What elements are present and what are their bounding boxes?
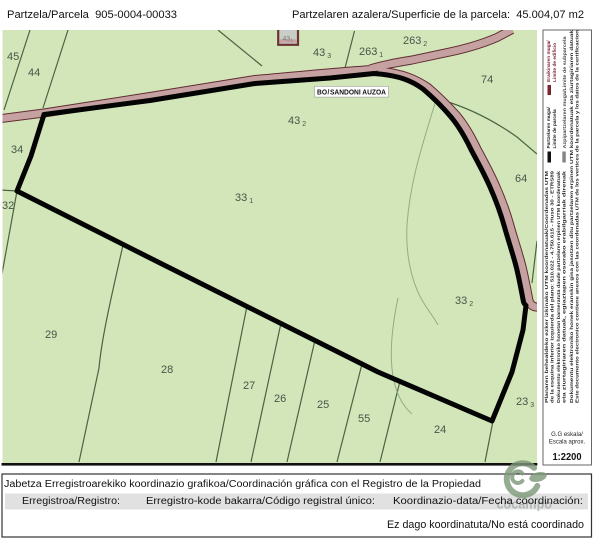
svg-text:1:2200: 1:2200 (553, 451, 582, 463)
svg-text:G.G eskala/: G.G eskala/ (551, 432, 583, 438)
svg-text:Escala aprox.: Escala aprox. (549, 440, 586, 446)
svg-text:Este documento electronico con: Este documento electronico contiene anex… (575, 29, 580, 403)
svg-text:Partzelaren azalera/Superficie: Partzelaren azalera/Superficie de la par… (292, 9, 584, 21)
svg-text:34: 34 (11, 144, 23, 156)
svg-text:Partzelaren muga/: Partzelaren muga/ (546, 107, 552, 149)
svg-text:de la esquina inferior izquier: de la esquina inferior izquierda del pla… (550, 170, 555, 403)
svg-text:24: 24 (434, 424, 446, 436)
svg-text:Eraikinaren muga/: Eraikinaren muga/ (546, 40, 552, 82)
svg-text:26: 26 (274, 393, 286, 405)
svg-text:25: 25 (317, 399, 329, 411)
svg-text:431: 431 (283, 36, 294, 43)
svg-text:27: 27 (243, 380, 255, 392)
svg-text:Ez dago koordinatuta/No está c: Ez dago koordinatuta/No está coordinado (387, 519, 584, 531)
svg-text:28: 28 (161, 364, 173, 376)
svg-text:29: 29 (45, 329, 57, 341)
svg-text:Jabetza Erregistroarekiko koor: Jabetza Erregistroarekiko koordinazio gr… (4, 479, 481, 490)
svg-text:eta ziurtagiriaren datuak, egi: eta ziurtagiriaren datuak, egiaztapen os… (562, 170, 567, 403)
svg-text:Erregistro-kode bakarra/Código: Erregistro-kode bakarra/Código registral… (146, 496, 375, 507)
svg-text:Koordinazio-data/Fecha coordin: Koordinazio-data/Fecha coordinación: (393, 496, 583, 507)
svg-text:Azpipartzelaren muga/Limite de: Azpipartzelaren muga/Limite de subparcel… (562, 36, 568, 148)
svg-text:Dokumentu elektroniko honek er: Dokumentu elektroniko honek eranskin gis… (569, 29, 574, 403)
svg-text:Planaren behealdeko ezker izki: Planaren behealdeko ezker izkinako UTM k… (544, 170, 549, 403)
svg-text:Partzela/Parcela 905-0004-000: Partzela/Parcela 905-0004-00033 (7, 9, 177, 21)
svg-text:74: 74 (481, 74, 493, 86)
svg-text:Erregistroa/Registro:: Erregistroa/Registro: (22, 496, 120, 507)
svg-text:55: 55 (358, 413, 370, 425)
svg-text:Dokumentu elektroniko honetan: Dokumentu elektroniko honetan barneratut… (556, 170, 561, 403)
svg-text:Limite de edificio: Limite de edificio (552, 43, 558, 82)
svg-text:44: 44 (28, 67, 40, 79)
svg-text:BO / SANDONI AUZOA: BO / SANDONI AUZOA (317, 90, 386, 97)
svg-text:45: 45 (7, 51, 19, 63)
svg-text:64: 64 (515, 173, 527, 185)
svg-text:Limite de parcela: Limite de parcela (552, 109, 558, 149)
svg-text:32: 32 (2, 200, 14, 212)
